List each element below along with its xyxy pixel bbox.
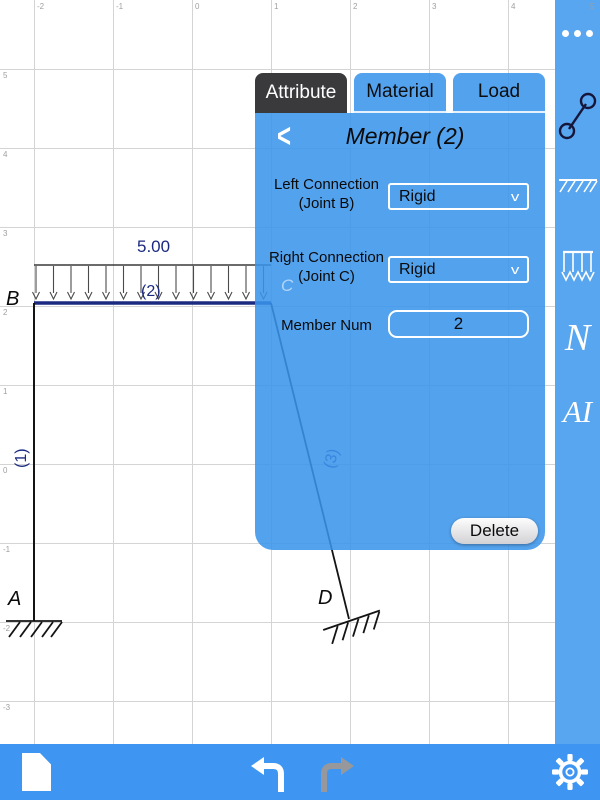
support-tool-button[interactable] (555, 178, 600, 200)
redo-button[interactable] (315, 752, 355, 794)
settings-button[interactable] (549, 751, 591, 793)
panel-body: < Member (2) Left Connection (Joint B) R… (255, 113, 545, 550)
delete-button[interactable]: Delete (451, 518, 538, 544)
joint-label-b: B (6, 288, 19, 310)
distributed-load-tool-button[interactable] (555, 250, 600, 284)
dropdown-chevron-icon: v (510, 262, 529, 277)
grid-col-label: 1 (274, 3, 278, 11)
more-button[interactable] (555, 30, 600, 37)
grid-col-label: -2 (37, 3, 44, 11)
app-screen: -2-1012345 543210-1-2-3 (0, 0, 600, 800)
tab-material[interactable]: Material (354, 73, 446, 113)
tab-load[interactable]: Load (453, 73, 545, 113)
panel-tabs: Attribute Material Load (255, 73, 545, 113)
grid-col-label: 0 (195, 3, 199, 11)
right-connection-dropdown[interactable]: Rigid v (388, 256, 529, 283)
tab-attribute[interactable]: Attribute (255, 73, 347, 113)
redo-icon (324, 757, 354, 792)
grid-col-label: -1 (116, 3, 123, 11)
grid-row-label: 0 (3, 467, 7, 475)
grid-row-label: 1 (3, 388, 7, 396)
ellipsis-icon (562, 30, 593, 37)
joint-label-d: D (318, 587, 332, 609)
left-connection-value: Rigid (390, 188, 513, 206)
ai-tool-button[interactable]: AI (555, 394, 600, 430)
member-num-label: Member Num (259, 316, 394, 335)
joint-label-c: C (281, 276, 293, 296)
letter-n-icon: N (565, 316, 590, 360)
undo-icon (251, 757, 281, 792)
member-2-label: (2) (141, 283, 161, 300)
grid-col-label: 4 (511, 3, 515, 11)
left-connection-dropdown[interactable]: Rigid v (388, 183, 529, 210)
load-arrows (33, 266, 268, 299)
grid-row-label: 3 (3, 230, 7, 238)
member-num-input[interactable]: 2 (388, 310, 529, 338)
grid-row-label: 5 (3, 72, 7, 80)
right-connection-label: Right Connection (Joint C) (259, 248, 394, 286)
new-document-button[interactable] (22, 753, 51, 791)
fixed-support-d[interactable] (323, 610, 385, 645)
left-connection-label: Left Connection (Joint B) (259, 175, 394, 213)
right-sidebar: N AI (555, 0, 600, 744)
grid-col-label: 2 (353, 3, 357, 11)
member-icon (557, 88, 598, 140)
bottom-toolbar (0, 744, 600, 800)
grid-row-label: -1 (3, 546, 10, 554)
member-tool-button[interactable] (555, 88, 600, 140)
fixed-support-icon (558, 178, 598, 200)
fixed-support-a[interactable] (6, 621, 62, 637)
distributed-load-icon (560, 250, 596, 284)
axial-force-tool-button[interactable]: N (555, 316, 600, 360)
grid-row-label: 2 (3, 309, 7, 317)
dropdown-chevron-icon: v (510, 189, 529, 204)
right-connection-value: Rigid (390, 261, 513, 279)
attribute-panel: Attribute Material Load < Member (2) Lef… (255, 73, 545, 550)
load-value-label: 5.00 (137, 237, 170, 256)
back-chevron-icon[interactable]: < (277, 120, 291, 154)
grid-row-label: 4 (3, 151, 7, 159)
panel-title: Member (2) (295, 123, 515, 150)
member-1-label: (1) (13, 448, 30, 468)
undo-button[interactable] (250, 752, 290, 794)
distributed-load[interactable] (33, 265, 272, 299)
grid-row-label: -2 (3, 625, 10, 633)
grid-col-label: 3 (432, 3, 436, 11)
gear-icon (552, 754, 588, 790)
joint-label-a: A (7, 588, 21, 610)
grid-row-label: -3 (3, 704, 10, 712)
letter-ai-icon: AI (563, 394, 592, 430)
grid-col-label: 5 (590, 3, 594, 11)
